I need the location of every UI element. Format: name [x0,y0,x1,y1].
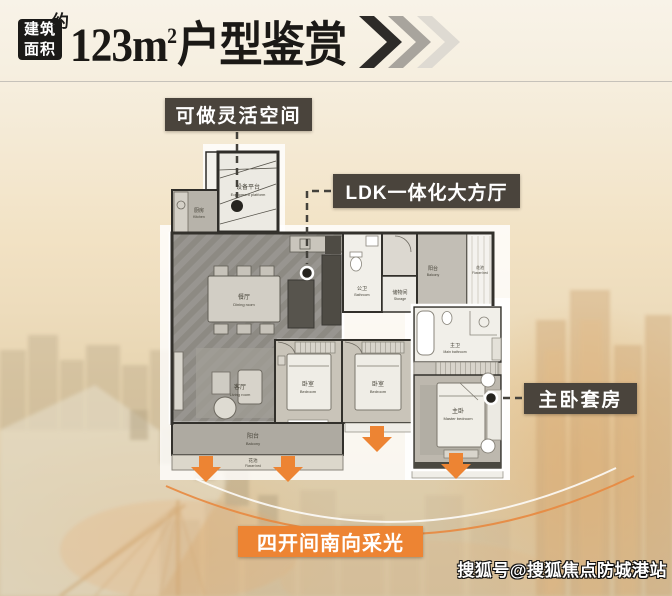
room-label-en: Flower bed [245,464,261,468]
room-label-en: Kitchen [193,215,205,219]
bathtub [417,311,434,355]
basin [492,338,501,360]
room-label: 公卫 [357,286,367,292]
connector-dot-flexible [231,200,243,212]
room-label: 花池 [249,457,258,464]
watermark: 搜狐号@搜狐焦点防城港站 [457,556,667,581]
room-label: 阳台 [247,432,259,440]
floorplan-svg: 设备平台 Equipment platform 厨房 Kitchen [0,0,672,596]
room-balcony: 阳台 Balcony 花池 Flower bed [172,423,343,470]
room-label: 客厅 [234,383,246,391]
foyer-closet [325,236,341,254]
toilet [351,257,362,271]
room-label-en: Dining room [233,302,255,307]
room-bedroom-2: 卧室 Bedroom [342,340,412,432]
room-label-en: Bedroom [370,389,387,394]
callout-south-facing: 四开间南向采光 [238,526,423,557]
room-label: 阳台 [428,265,438,272]
room-label: 卧室 [372,380,384,388]
poster-canvas: 设备平台 Equipment platform 厨房 Kitchen [0,0,672,596]
decor-circle [481,439,495,453]
room-label: 花池 [476,264,484,270]
room-label-en: Storage [394,297,406,301]
callout-flexible-space: 可做灵活空间 [165,98,312,131]
room-bathroom: 公卫 Bathroom [343,233,382,312]
title-row: 123m2户型鉴赏 [70,6,461,76]
kitchen-island [288,280,314,328]
basin [366,236,378,246]
room-kitchen: 厨房 Kitchen [172,190,218,234]
wardrobe [295,342,335,353]
room-label: 厨房 [194,207,204,214]
title-number: 123m [70,19,167,72]
room-label-en: Living room [230,392,251,397]
room-bedroom-1: 卧室 Bedroom [275,340,342,426]
header: 建筑 面积 约 123m2户型鉴赏 [0,0,672,82]
room-label-en: Master bedroom [443,416,473,421]
decor-circle [481,373,495,387]
room-label-en: Balcony [427,273,440,277]
chevrons-icon [359,16,461,68]
toilet [442,312,452,325]
room-hall-storage: 储物间 Storage [382,233,417,312]
room-label-en: Main bathroom [443,350,466,354]
room-label: 餐厅 [238,293,250,301]
closet [414,362,436,375]
toilet-tank [350,252,362,257]
room-label: 主卧 [452,407,464,415]
callout-master-suite: 主卧套房 [524,383,637,414]
title-suffix: 户型鉴赏 [177,19,346,72]
room-label: 主卫 [450,342,460,349]
approx-mark: 约 [52,7,69,32]
chevron-dark-icon [359,16,402,68]
wardrobe [362,342,404,353]
area-badge-line2: 面积 [18,40,62,60]
kitchen-counter [174,192,188,232]
room-label-en: Flower bed [472,271,488,275]
room-label-en: Balcony [246,441,260,446]
callout-ldk: LDK一体化大方厅 [333,174,520,208]
title-superscript: 2 [167,23,177,48]
tv-unit [174,352,183,410]
header-divider [0,81,672,82]
room-label: 设备平台 [236,183,260,191]
room-label-en: Bedroom [300,389,317,394]
tall-cabinets [322,255,341,325]
side-table [212,372,230,394]
bed [437,383,485,447]
room-label-en: Bathroom [354,293,369,297]
room-label: 卧室 [302,380,314,388]
room-service-balcony: 阳台 Balcony 花池 Flower bed [417,233,493,308]
armchair [214,397,236,419]
nightstand [278,356,285,365]
room-label: 储物间 [392,289,407,296]
connector-dot-master [485,392,497,404]
page-title: 123m2户型鉴赏 [70,6,346,76]
connector-dot-ldk [301,267,313,279]
